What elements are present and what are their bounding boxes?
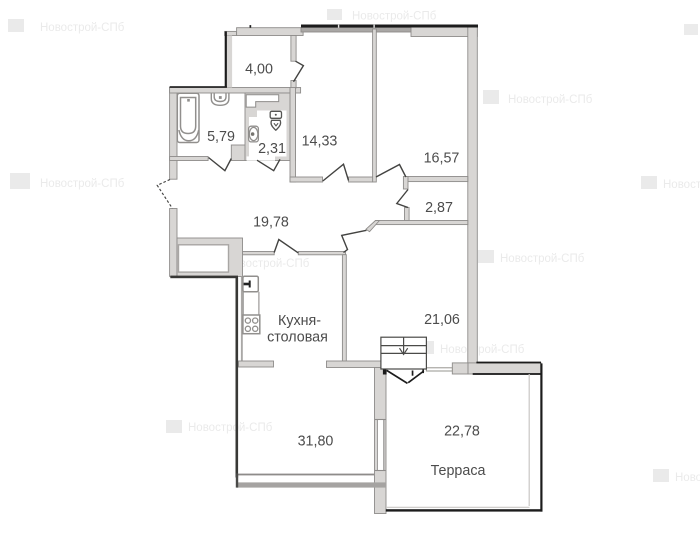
svg-text:Новострой-СПб: Новострой-СПб xyxy=(508,94,593,106)
svg-text:22,78: 22,78 xyxy=(444,423,480,439)
svg-text:21,06: 21,06 xyxy=(424,312,460,328)
svg-text:Новострой-СПб: Новострой-СПб xyxy=(500,253,585,265)
svg-text:Новострой-СПб: Новострой-СПб xyxy=(40,178,125,190)
svg-text:Новострой-СПб: Новострой-СПб xyxy=(352,11,437,23)
svg-text:2,31: 2,31 xyxy=(258,141,286,157)
svg-text:4,00: 4,00 xyxy=(245,61,273,77)
svg-text:Новострой-СПб: Новострой-СПб xyxy=(675,472,700,484)
svg-text:31,80: 31,80 xyxy=(298,434,334,450)
svg-text:19,78: 19,78 xyxy=(253,214,289,230)
svg-text:14,33: 14,33 xyxy=(302,134,338,150)
svg-text:Новострой-СПб: Новострой-СПб xyxy=(663,179,700,191)
svg-text:столовая: столовая xyxy=(267,330,328,346)
svg-text:Терраса: Терраса xyxy=(431,463,486,479)
svg-text:Кухня-: Кухня- xyxy=(278,313,321,329)
svg-text:Новострой-СПб: Новострой-СПб xyxy=(188,422,273,434)
svg-text:5,79: 5,79 xyxy=(207,129,235,145)
svg-text:16,57: 16,57 xyxy=(424,150,460,166)
svg-text:Новострой-СПб: Новострой-СПб xyxy=(40,22,125,34)
svg-text:2,87: 2,87 xyxy=(425,200,453,216)
svg-text:Новострой-СПб: Новострой-СПб xyxy=(440,344,525,356)
